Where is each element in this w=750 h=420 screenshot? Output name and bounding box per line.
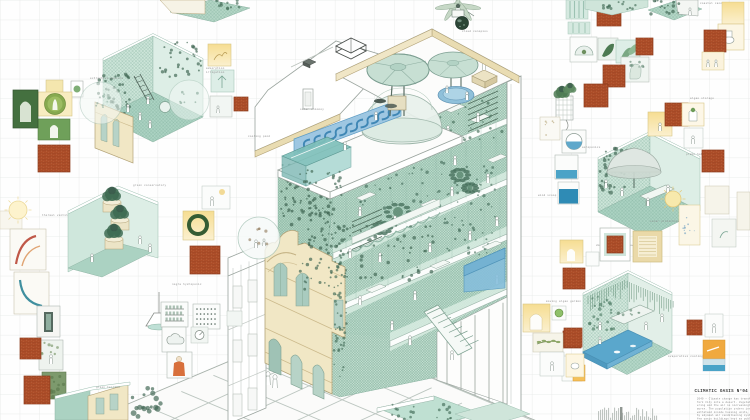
svg-text:solar chimney: solar chimney bbox=[300, 107, 324, 111]
svg-text:algae storage: algae storage bbox=[690, 96, 714, 100]
svg-text:solar protection: solar protection bbox=[650, 219, 680, 223]
svg-text:CLIMATIC OASIS N°04: CLIMATIC OASIS N°04 bbox=[695, 389, 749, 394]
svg-text:adsorption: adsorption bbox=[206, 66, 225, 70]
svg-text:moving algae garden: moving algae garden bbox=[546, 299, 581, 303]
svg-text:cloud canopies: cloud canopies bbox=[462, 29, 488, 33]
svg-text:irrigation: irrigation bbox=[206, 70, 225, 74]
svg-text:negra hydroponic: negra hydroponic bbox=[172, 282, 202, 286]
svg-text:green terrace: green terrace bbox=[96, 386, 120, 389]
svg-text:extractive capsule: extractive capsule bbox=[90, 76, 124, 80]
svg-text:aeroponics: aeroponics bbox=[582, 145, 601, 149]
svg-text:cooling pond: cooling pond bbox=[248, 134, 270, 138]
svg-text:green conservatory: green conservatory bbox=[133, 184, 167, 187]
svg-text:wind scoop: wind scoop bbox=[538, 193, 557, 197]
svg-text:evaporative cooling: evaporative cooling bbox=[668, 354, 703, 358]
